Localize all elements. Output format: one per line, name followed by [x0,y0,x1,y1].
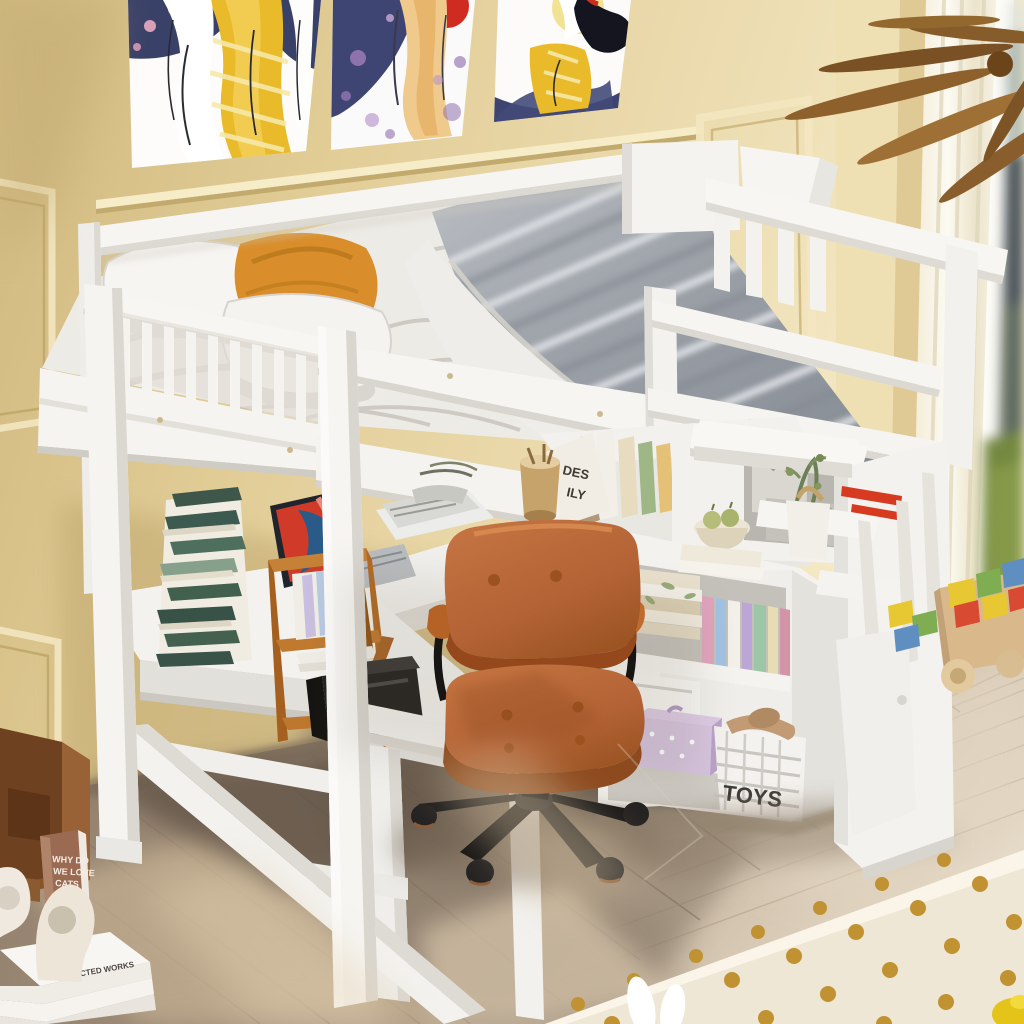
svg-text:WHY DO: WHY DO [52,854,89,866]
